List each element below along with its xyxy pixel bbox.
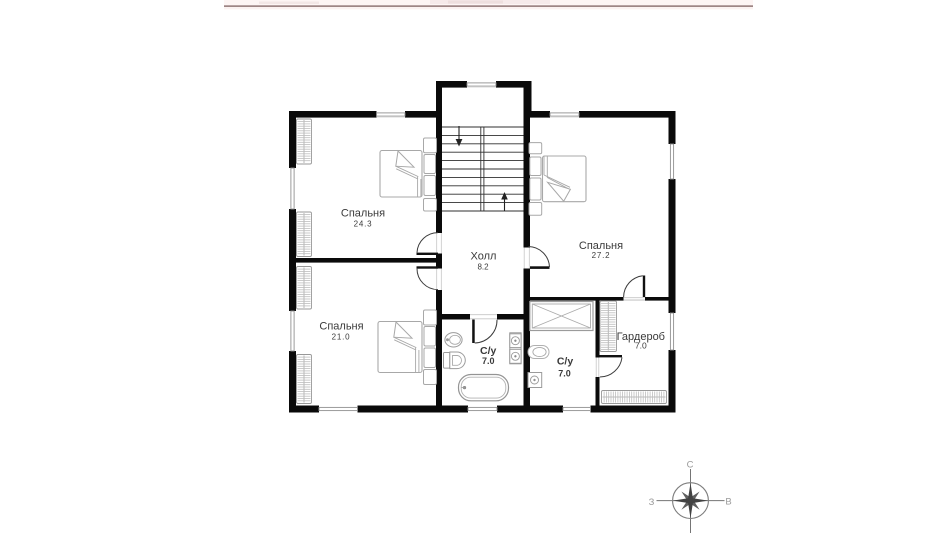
svg-text:С/у: С/у — [557, 356, 574, 368]
svg-text:7.0: 7.0 — [558, 368, 571, 378]
svg-text:З: З — [649, 497, 655, 508]
svg-text:Спальня: Спальня — [319, 321, 363, 333]
svg-text:Холл: Холл — [471, 250, 497, 262]
svg-text:7.0: 7.0 — [635, 341, 647, 351]
svg-text:24.3: 24.3 — [354, 219, 373, 228]
svg-text:8.2: 8.2 — [477, 262, 489, 271]
svg-text:7.0: 7.0 — [482, 356, 495, 366]
svg-text:Спальня: Спальня — [341, 208, 385, 220]
svg-text:В: В — [725, 496, 731, 507]
svg-text:С: С — [687, 460, 694, 471]
svg-text:21.0: 21.0 — [332, 333, 351, 342]
svg-text:27.2: 27.2 — [592, 251, 611, 260]
